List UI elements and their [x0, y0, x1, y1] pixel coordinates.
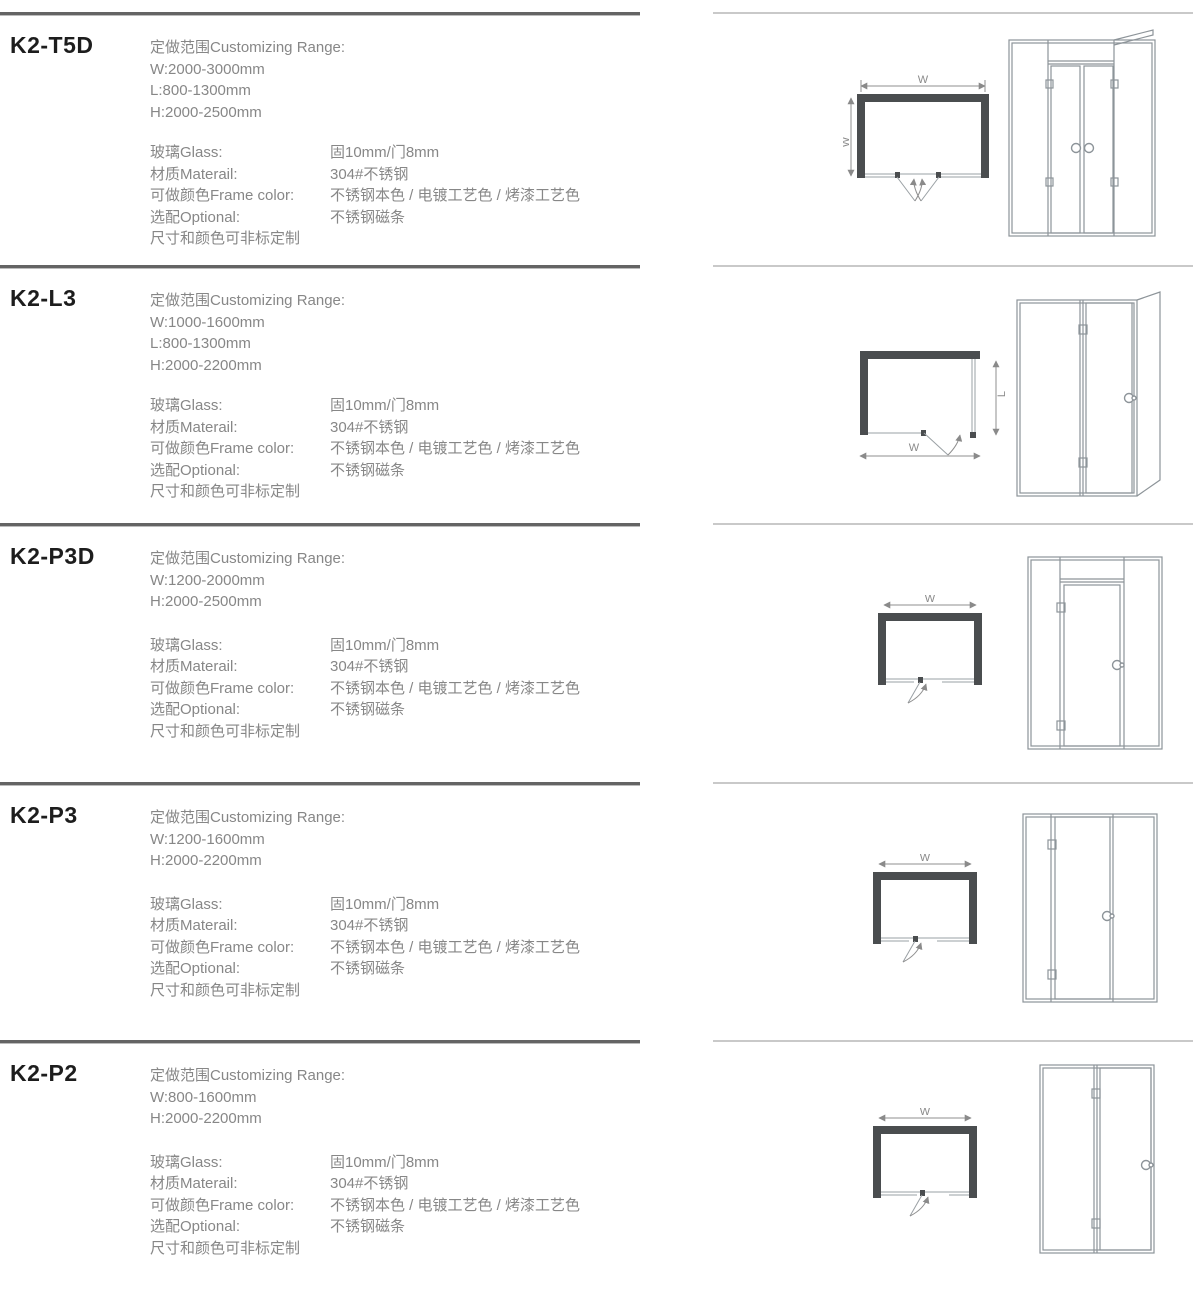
spec-row-frame-color: 可做颜色Frame color:不锈钢本色 / 电镀工艺色 / 烤漆工艺色	[150, 185, 580, 207]
custom-note: 尺寸和颜色可非标定制	[150, 980, 580, 1002]
plan-dim-width-label: W	[920, 854, 931, 864]
range-line-h: H:2000-2500mm	[150, 102, 580, 124]
spec-value: 不锈钢磁条	[330, 207, 405, 229]
spec-row-material: 材质Materail:304#不锈钢	[150, 417, 580, 439]
spec-text-block: 定做范围Customizing Range: W:1000-1600mm L:8…	[150, 290, 580, 503]
range-line-w: W:1200-1600mm	[150, 829, 580, 851]
elevation-diagram	[1008, 290, 1168, 505]
spec-row-glass: 玻璃Glass:固10mm/门8mm	[150, 635, 580, 657]
section-divider-left	[0, 782, 640, 786]
spec-value: 304#不锈钢	[330, 656, 408, 678]
range-title: 定做范围Customizing Range:	[150, 37, 580, 59]
spec-label: 玻璃Glass:	[150, 1152, 330, 1174]
range-title: 定做范围Customizing Range:	[150, 548, 580, 570]
spec-value: 不锈钢本色 / 电镀工艺色 / 烤漆工艺色	[330, 185, 580, 207]
spec-rows: 玻璃Glass:固10mm/门8mm 材质Materail:304#不锈钢 可做…	[150, 142, 580, 228]
spec-row-frame-color: 可做颜色Frame color:不锈钢本色 / 电镀工艺色 / 烤漆工艺色	[150, 1195, 580, 1217]
section-divider-right	[713, 12, 1193, 14]
spec-text-block: 定做范围Customizing Range: W:800-1600mm H:20…	[150, 1065, 580, 1259]
plan-view-diagram: W L	[848, 337, 1008, 465]
spec-value: 304#不锈钢	[330, 417, 408, 439]
section-divider-left	[0, 12, 640, 16]
spec-row-glass: 玻璃Glass:固10mm/门8mm	[150, 894, 580, 916]
model-title: K2-T5D	[10, 32, 94, 59]
catalog-page: K2-T5D 定做范围Customizing Range: W:2000-300…	[0, 0, 1200, 1303]
spec-label: 玻璃Glass:	[150, 894, 330, 916]
elevation-diagram	[1015, 804, 1165, 1007]
spec-value: 不锈钢本色 / 电镀工艺色 / 烤漆工艺色	[330, 678, 580, 700]
range-title: 定做范围Customizing Range:	[150, 1065, 580, 1087]
model-title: K2-P3D	[10, 543, 95, 570]
spec-row-material: 材质Materail:304#不锈钢	[150, 164, 580, 186]
spec-value: 304#不锈钢	[330, 1173, 408, 1195]
spec-rows: 玻璃Glass:固10mm/门8mm 材质Materail:304#不锈钢 可做…	[150, 635, 580, 721]
model-title: K2-L3	[10, 285, 76, 312]
spec-value: 固10mm/门8mm	[330, 142, 439, 164]
spec-row-optional: 选配Optional:不锈钢磁条	[150, 958, 580, 980]
spec-text-block: 定做范围Customizing Range: W:1200-2000mm H:2…	[150, 548, 580, 742]
spec-row-material: 材质Materail:304#不锈钢	[150, 656, 580, 678]
model-title: K2-P3	[10, 802, 78, 829]
section-divider-left	[0, 1040, 640, 1044]
spec-value: 不锈钢本色 / 电镀工艺色 / 烤漆工艺色	[330, 1195, 580, 1217]
spec-rows: 玻璃Glass:固10mm/门8mm 材质Materail:304#不锈钢 可做…	[150, 894, 580, 980]
spec-value: 不锈钢本色 / 电镀工艺色 / 烤漆工艺色	[330, 937, 580, 959]
section-k2-p2: K2-P2 定做范围Customizing Range: W:800-1600m…	[0, 1040, 1200, 1303]
spec-label: 选配Optional:	[150, 460, 330, 482]
spec-row-frame-color: 可做颜色Frame color:不锈钢本色 / 电镀工艺色 / 烤漆工艺色	[150, 937, 580, 959]
plan-dim-width-label: W	[918, 74, 929, 86]
spec-row-glass: 玻璃Glass:固10mm/门8mm	[150, 142, 580, 164]
plan-view-diagram: W W	[843, 74, 995, 202]
spec-row-optional: 选配Optional:不锈钢磁条	[150, 460, 580, 482]
spec-value: 固10mm/门8mm	[330, 1152, 439, 1174]
model-title: K2-P2	[10, 1060, 78, 1087]
spec-value: 不锈钢磁条	[330, 1216, 405, 1238]
section-divider-right	[713, 1040, 1193, 1042]
section-divider-left	[0, 523, 640, 527]
range-line-w: W:1000-1600mm	[150, 312, 580, 334]
plan-dim-width-label: W	[909, 442, 920, 454]
plan-dim-depth-label: W	[843, 136, 852, 147]
spec-label: 材质Materail:	[150, 164, 330, 186]
spec-row-frame-color: 可做颜色Frame color:不锈钢本色 / 电镀工艺色 / 烤漆工艺色	[150, 678, 580, 700]
elevation-diagram	[1000, 28, 1170, 246]
spec-rows: 玻璃Glass:固10mm/门8mm 材质Materail:304#不锈钢 可做…	[150, 395, 580, 481]
spec-label: 可做颜色Frame color:	[150, 438, 330, 460]
plan-view-diagram: W	[865, 1108, 985, 1218]
spec-row-material: 材质Materail:304#不锈钢	[150, 1173, 580, 1195]
spec-label: 材质Materail:	[150, 656, 330, 678]
spec-value: 不锈钢磁条	[330, 460, 405, 482]
spec-label: 可做颜色Frame color:	[150, 678, 330, 700]
spec-row-material: 材质Materail:304#不锈钢	[150, 915, 580, 937]
range-line-w: W:1200-2000mm	[150, 570, 580, 592]
spec-text-block: 定做范围Customizing Range: W:1200-1600mm H:2…	[150, 807, 580, 1001]
section-k2-t5d: K2-T5D 定做范围Customizing Range: W:2000-300…	[0, 12, 1200, 265]
spec-value: 固10mm/门8mm	[330, 894, 439, 916]
range-title: 定做范围Customizing Range:	[150, 807, 580, 829]
spec-value: 固10mm/门8mm	[330, 395, 439, 417]
plan-dim-width-label: W	[920, 1108, 931, 1118]
range-title: 定做范围Customizing Range:	[150, 290, 580, 312]
spec-label: 可做颜色Frame color:	[150, 1195, 330, 1217]
spec-row-optional: 选配Optional:不锈钢磁条	[150, 207, 580, 229]
section-divider-right	[713, 265, 1193, 267]
section-divider-right	[713, 782, 1193, 784]
range-line-h: H:2000-2200mm	[150, 850, 580, 872]
spec-label: 选配Optional:	[150, 1216, 330, 1238]
spec-value: 固10mm/门8mm	[330, 635, 439, 657]
range-line-l: L:800-1300mm	[150, 80, 580, 102]
spec-value: 不锈钢磁条	[330, 958, 405, 980]
plan-dim-width-label: W	[925, 595, 936, 605]
spec-row-glass: 玻璃Glass:固10mm/门8mm	[150, 1152, 580, 1174]
spec-value: 不锈钢磁条	[330, 699, 405, 721]
plan-dim-depth-label: L	[996, 391, 1008, 397]
spec-row-frame-color: 可做颜色Frame color:不锈钢本色 / 电镀工艺色 / 烤漆工艺色	[150, 438, 580, 460]
spec-text-block: 定做范围Customizing Range: W:2000-3000mm L:8…	[150, 37, 580, 250]
spec-row-optional: 选配Optional:不锈钢磁条	[150, 1216, 580, 1238]
custom-note: 尺寸和颜色可非标定制	[150, 481, 580, 503]
plan-view-diagram: W	[865, 854, 985, 964]
spec-label: 材质Materail:	[150, 915, 330, 937]
custom-note: 尺寸和颜色可非标定制	[150, 228, 580, 250]
custom-note: 尺寸和颜色可非标定制	[150, 1238, 580, 1260]
plan-view-diagram: W	[870, 595, 990, 705]
spec-label: 玻璃Glass:	[150, 395, 330, 417]
range-line-l: L:800-1300mm	[150, 333, 580, 355]
spec-row-glass: 玻璃Glass:固10mm/门8mm	[150, 395, 580, 417]
spec-value: 304#不锈钢	[330, 164, 408, 186]
section-divider-left	[0, 265, 640, 269]
spec-label: 选配Optional:	[150, 699, 330, 721]
spec-rows: 玻璃Glass:固10mm/门8mm 材质Materail:304#不锈钢 可做…	[150, 1152, 580, 1238]
spec-label: 可做颜色Frame color:	[150, 937, 330, 959]
spec-label: 材质Materail:	[150, 1173, 330, 1195]
elevation-diagram	[1032, 1055, 1162, 1258]
spec-label: 材质Materail:	[150, 417, 330, 439]
spec-label: 玻璃Glass:	[150, 142, 330, 164]
range-line-h: H:2000-2200mm	[150, 1108, 580, 1130]
range-line-w: W:2000-3000mm	[150, 59, 580, 81]
section-k2-l3: K2-L3 定做范围Customizing Range: W:1000-1600…	[0, 265, 1200, 523]
spec-label: 选配Optional:	[150, 958, 330, 980]
spec-row-optional: 选配Optional:不锈钢磁条	[150, 699, 580, 721]
section-k2-p3: K2-P3 定做范围Customizing Range: W:1200-1600…	[0, 782, 1200, 1040]
elevation-diagram	[1020, 545, 1170, 763]
spec-value: 304#不锈钢	[330, 915, 408, 937]
range-line-w: W:800-1600mm	[150, 1087, 580, 1109]
range-line-h: H:2000-2500mm	[150, 591, 580, 613]
spec-label: 选配Optional:	[150, 207, 330, 229]
section-k2-p3d: K2-P3D 定做范围Customizing Range: W:1200-200…	[0, 523, 1200, 782]
spec-label: 可做颜色Frame color:	[150, 185, 330, 207]
spec-label: 玻璃Glass:	[150, 635, 330, 657]
section-divider-right	[713, 523, 1193, 525]
custom-note: 尺寸和颜色可非标定制	[150, 721, 580, 743]
spec-value: 不锈钢本色 / 电镀工艺色 / 烤漆工艺色	[330, 438, 580, 460]
range-line-h: H:2000-2200mm	[150, 355, 580, 377]
